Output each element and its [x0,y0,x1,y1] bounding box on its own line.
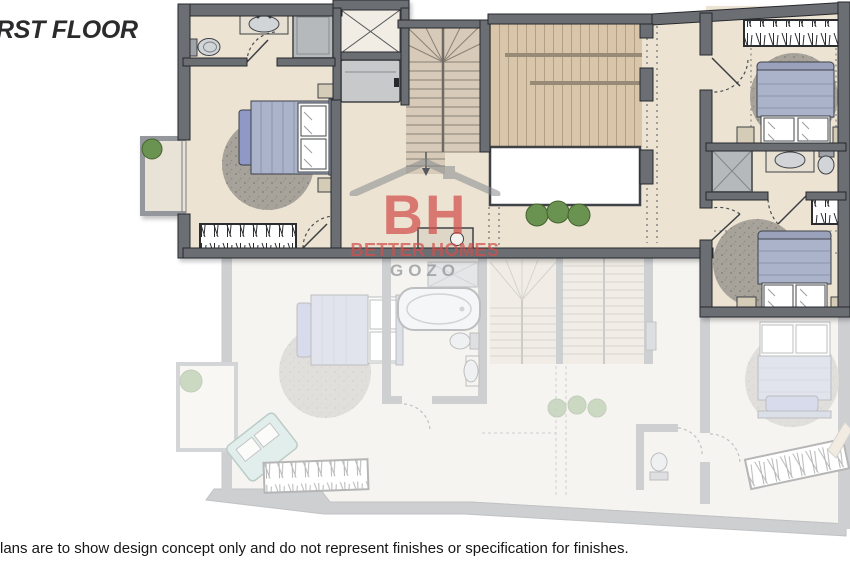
toilet-icon [188,39,220,57]
floor-plan-page: BH BETTER HOMES GOZO RST FLOOR lans are … [0,0,850,570]
plant-icon [588,399,606,417]
sink-icon [766,148,814,172]
floor-plan-drawing [0,0,850,570]
roof-terrace [490,24,642,147]
shower-icon [712,150,752,192]
ground-floor-staircase [490,258,656,364]
toilet-icon [450,333,479,349]
toilet-icon [818,150,834,174]
lightwell-shaft [341,10,400,53]
lift-icon [341,60,400,102]
plant-icon [548,399,566,417]
void-opening [490,147,640,205]
plant-icon [547,201,569,223]
plant-icon [180,370,202,392]
bathtub-icon [398,288,480,330]
shower-icon [293,13,333,58]
sink-icon [464,356,479,386]
plant-icon [568,396,586,414]
wardrobe-icon [264,459,369,493]
nightstand [737,127,754,143]
bed-icon [757,62,834,143]
bed-icon [239,99,336,175]
nightstand [318,84,333,98]
wall [222,258,232,364]
page-title: RST FLOOR [0,16,138,45]
plant-icon [526,204,548,226]
wardrobe-icon [744,20,846,46]
plant-icon [568,204,590,226]
bed-icon [758,231,831,310]
plant-icon [142,139,162,159]
toilet-icon [650,453,668,480]
disclaimer-text: lans are to show design concept only and… [0,540,629,557]
vanity-sink-icon [418,228,473,250]
ground-floor-balcony [178,364,236,450]
